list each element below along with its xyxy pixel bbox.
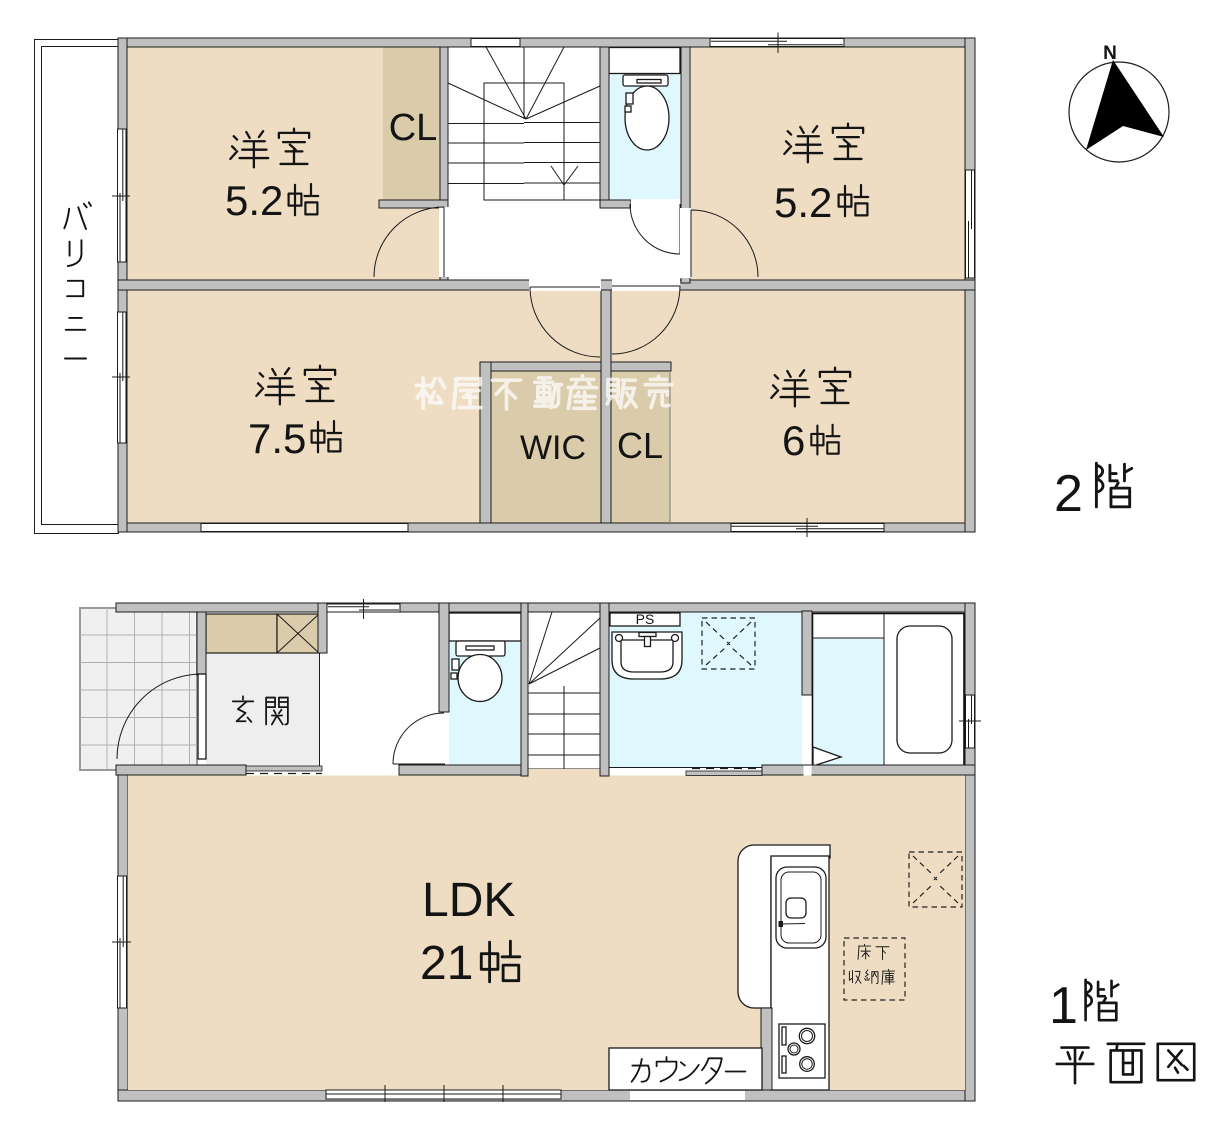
svg-text:2: 2 [1054,465,1083,523]
svg-text:1: 1 [1049,977,1078,1035]
svg-text:CL: CL [389,107,438,149]
svg-text:CL: CL [617,425,663,466]
svg-text:6: 6 [782,417,805,464]
svg-text:21: 21 [420,937,473,990]
svg-text:N: N [1103,43,1117,64]
svg-text:LDK: LDK [422,874,515,927]
svg-text:WIC: WIC [520,429,586,467]
svg-text:PS: PS [636,611,655,627]
svg-text:5.2: 5.2 [225,177,283,224]
svg-text:7.5: 7.5 [248,415,306,462]
svg-text:5.2: 5.2 [774,179,832,226]
